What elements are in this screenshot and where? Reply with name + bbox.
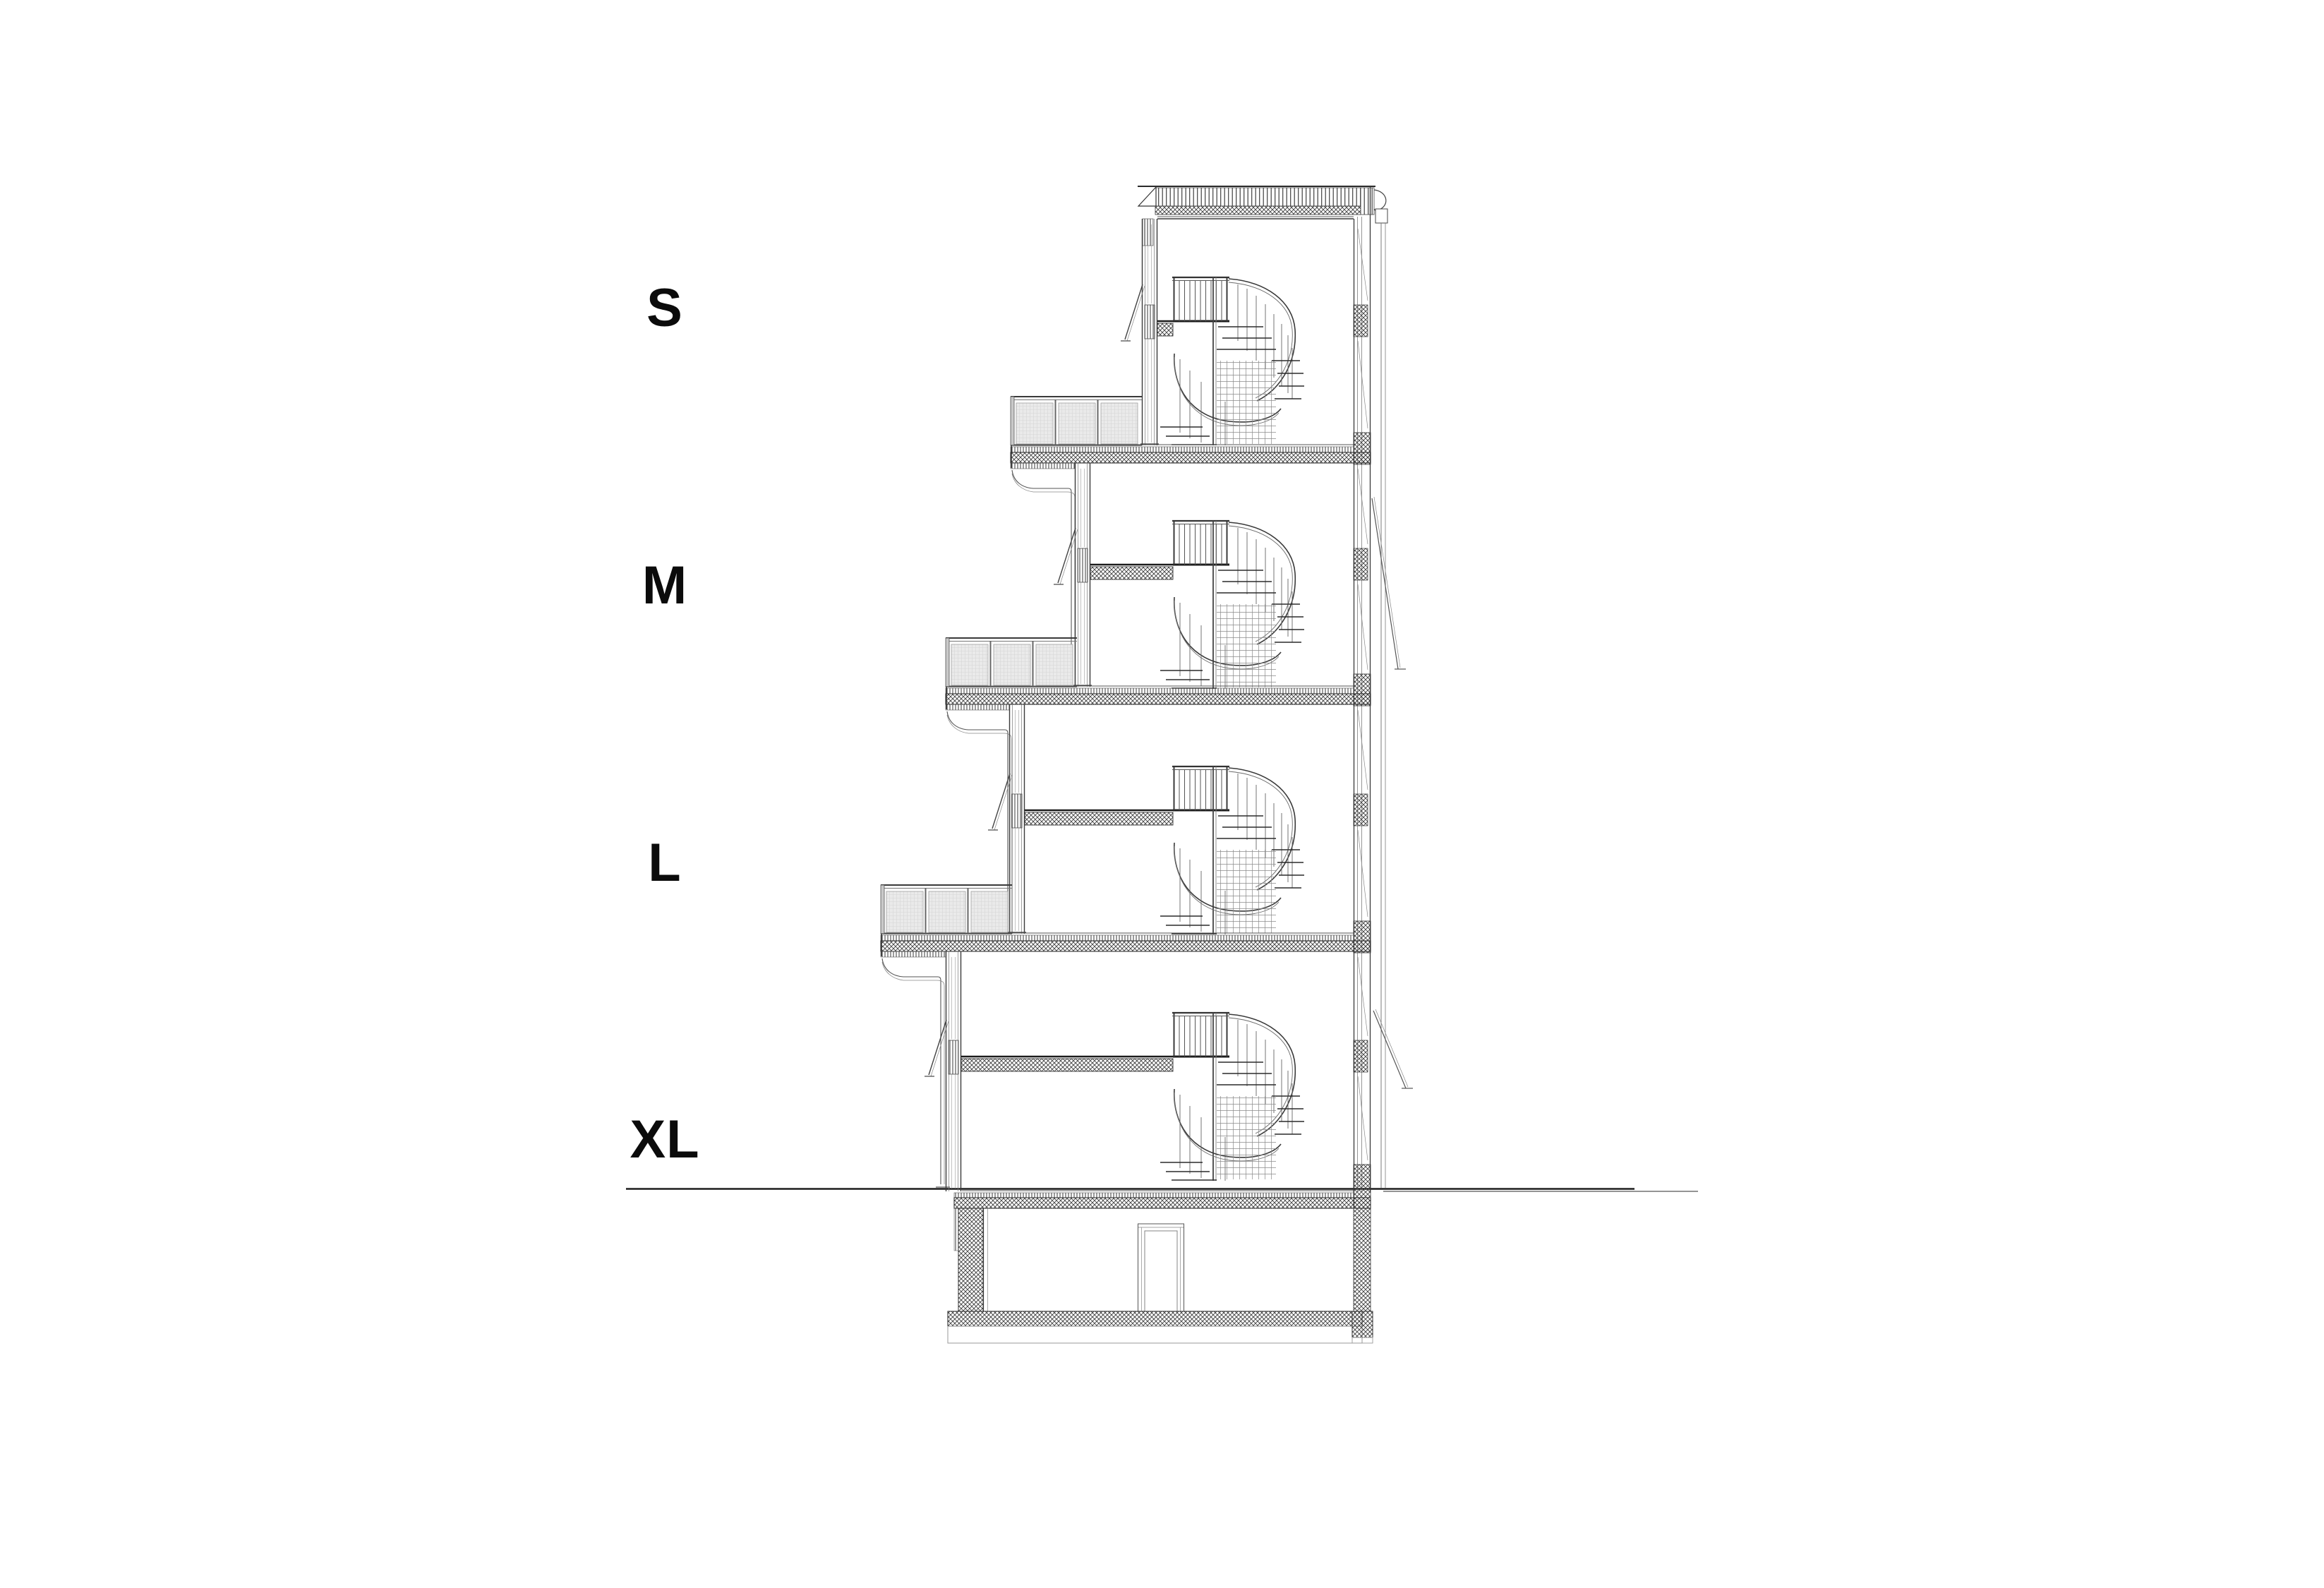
basement-wall-left xyxy=(958,1208,983,1311)
awning-sash-l xyxy=(988,774,1012,830)
ground-slab xyxy=(954,1191,1371,1251)
roof-right-fascia xyxy=(1361,188,1374,215)
floor-label-s: S xyxy=(646,278,683,338)
floor-s xyxy=(1121,219,1304,445)
building-section-drawing: S M L XL xyxy=(0,0,2324,1588)
floor-m xyxy=(1054,463,1304,689)
downpipe-l xyxy=(882,958,950,1187)
landing-slab-l xyxy=(1025,812,1173,825)
spiral-stair-l xyxy=(1160,766,1304,934)
basement-floor-slab xyxy=(948,1311,1362,1326)
awning-sash-s xyxy=(1121,284,1145,341)
awning-sash-xl xyxy=(925,1020,949,1076)
left-wall-xl xyxy=(925,951,961,1191)
slab-l-xl xyxy=(881,933,1371,957)
floor-l xyxy=(988,704,1304,934)
roof-seam-band xyxy=(1155,188,1361,206)
floor-labels: S M L XL xyxy=(630,278,699,1169)
spiral-stair-xl xyxy=(1160,1013,1304,1181)
right-open-sash-m xyxy=(1372,497,1406,669)
roof-left-fascia xyxy=(1138,187,1156,206)
gutter-outlet-box xyxy=(1375,209,1387,223)
right-plinth-wall xyxy=(1354,1165,1371,1311)
foundation-step-right xyxy=(1352,1311,1373,1337)
floor-xl xyxy=(925,951,1304,1191)
floor-label-m: M xyxy=(642,555,687,615)
landing-slab-xl xyxy=(961,1059,1173,1071)
landing-slab-m xyxy=(1090,567,1173,579)
floor-label-l: L xyxy=(648,833,681,893)
floor-label-xl: XL xyxy=(630,1109,699,1169)
basement-door xyxy=(1138,1224,1184,1311)
drawing-canvas: S M L XL xyxy=(0,0,2324,1588)
right-facade xyxy=(1354,186,1413,1311)
slab-s-m xyxy=(1011,445,1371,469)
roof-insulation-band xyxy=(1155,206,1361,215)
spiral-stair-m xyxy=(1160,521,1304,689)
landing-slab-s xyxy=(1157,323,1173,336)
roof xyxy=(1138,186,1387,246)
roof-gutter xyxy=(1374,190,1386,210)
foundation-outline xyxy=(948,1326,1362,1343)
spiral-stair-s xyxy=(1160,277,1304,445)
basement xyxy=(948,1208,1373,1343)
right-open-sash-xl xyxy=(1373,1009,1413,1088)
awning-sash-m xyxy=(1054,528,1078,584)
